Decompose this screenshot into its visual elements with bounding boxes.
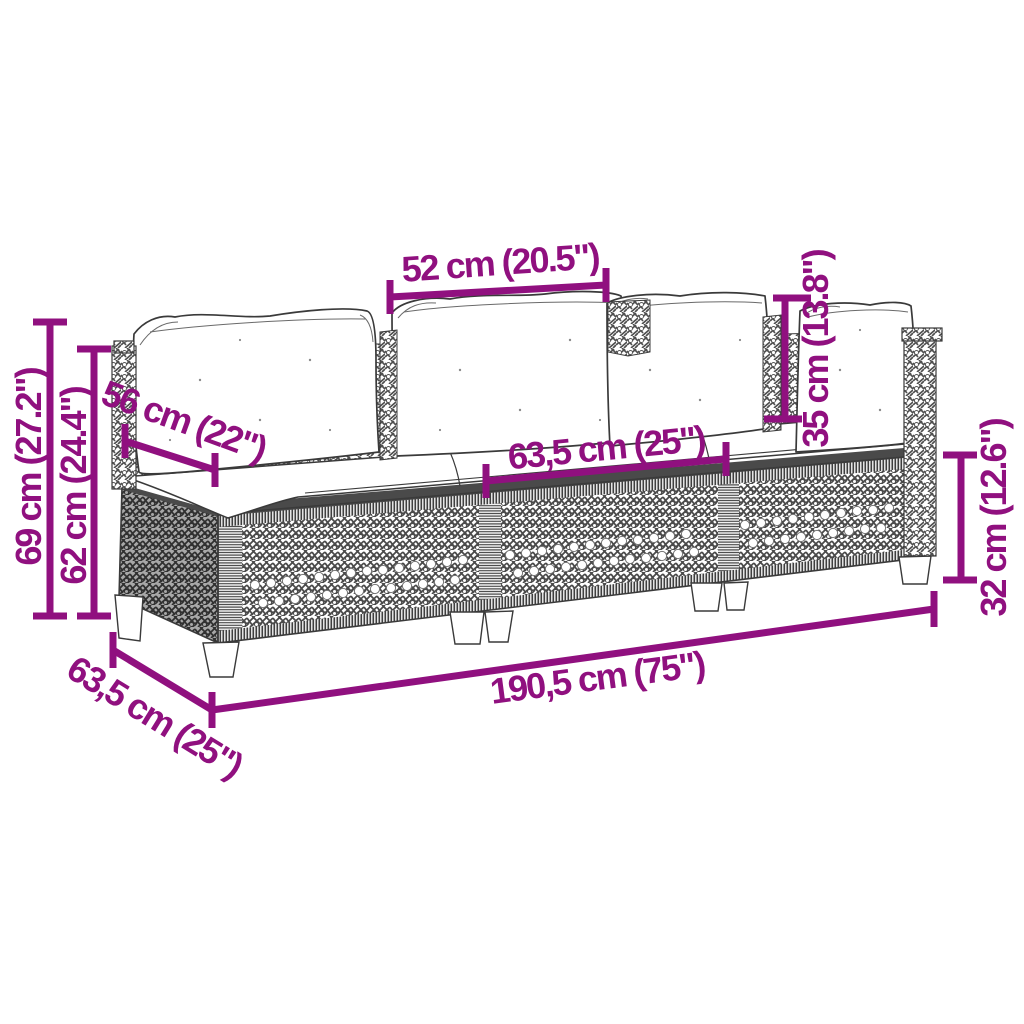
svg-text:69 cm (27.2"): 69 cm (27.2") xyxy=(8,367,49,565)
svg-text:52 cm (20.5"): 52 cm (20.5") xyxy=(400,235,601,290)
svg-text:35 cm (13.8"): 35 cm (13.8") xyxy=(795,249,836,447)
svg-text:32 cm (12.6"): 32 cm (12.6") xyxy=(973,418,1014,616)
svg-text:62 cm (24.4"): 62 cm (24.4") xyxy=(53,386,94,584)
